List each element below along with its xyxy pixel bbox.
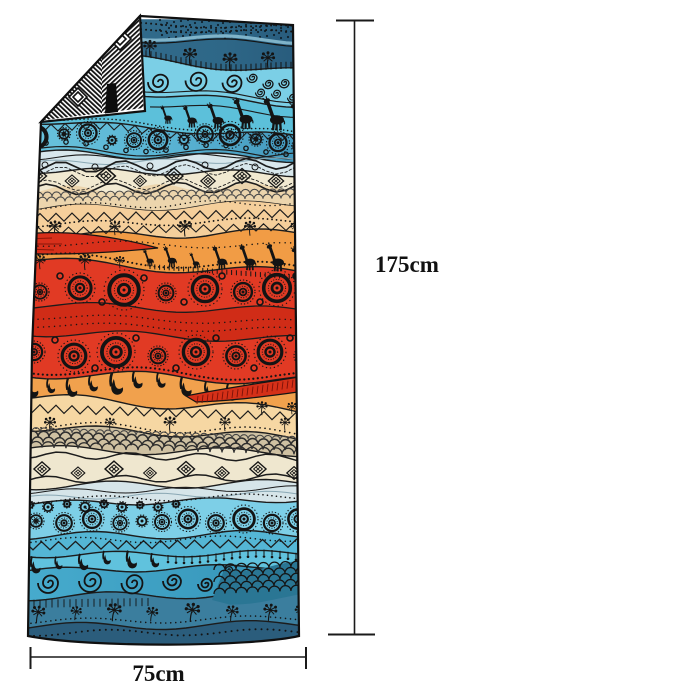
- svg-text:175cm: 175cm: [375, 252, 439, 277]
- svg-text:75cm: 75cm: [132, 661, 184, 686]
